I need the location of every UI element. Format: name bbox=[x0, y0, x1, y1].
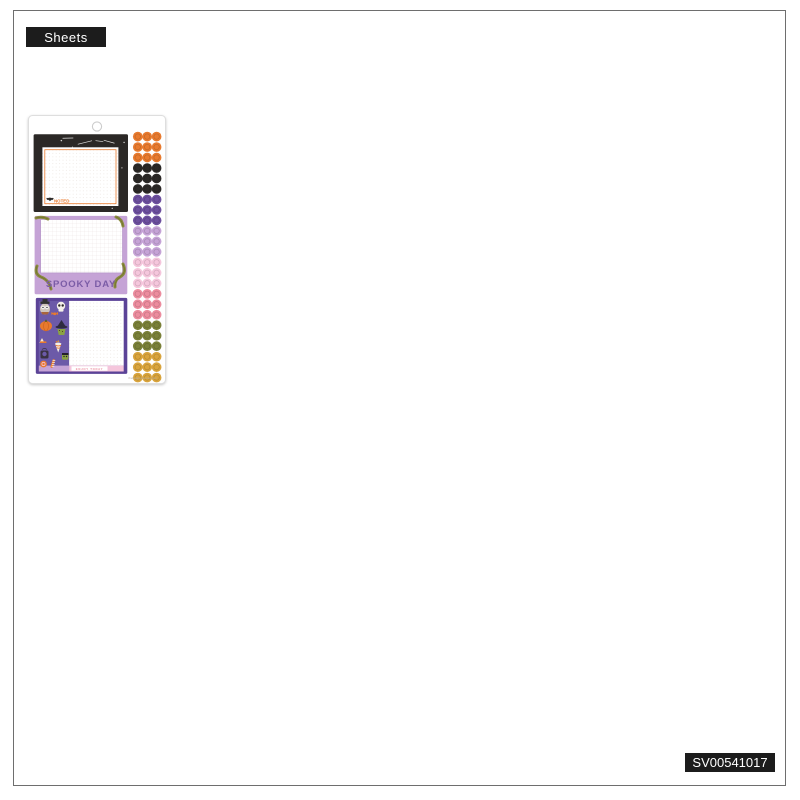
svg-text:ENJOY TODAY: ENJOY TODAY bbox=[75, 367, 102, 371]
svg-text:NOTED: NOTED bbox=[54, 199, 69, 204]
svg-text:SPOOKY DAY: SPOOKY DAY bbox=[45, 279, 115, 290]
svg-text:thehappyplanner.com: thehappyplanner.com bbox=[128, 376, 157, 380]
